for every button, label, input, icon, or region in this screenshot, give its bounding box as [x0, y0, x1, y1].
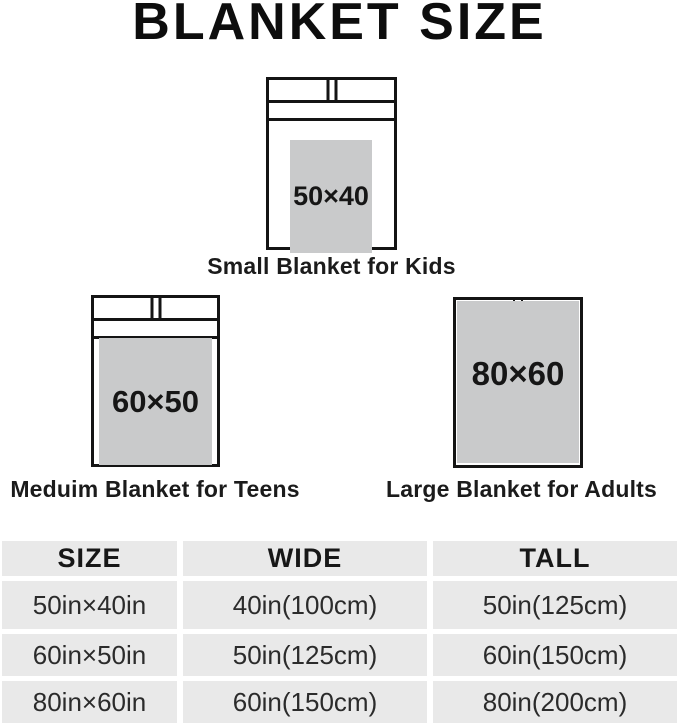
pillow-band: [269, 80, 394, 103]
table-header-size: SIZE: [2, 541, 177, 576]
pillow-divider: [150, 298, 161, 318]
table-cell-wide-small: 40in(100cm): [183, 581, 427, 629]
pillow-divider: [326, 80, 337, 100]
sheet-band: [94, 321, 217, 339]
size-table: SIZE WIDE TALL 50in×40in 40in(100cm) 50i…: [2, 541, 677, 723]
blanket-small: 50×40: [290, 140, 372, 253]
bed-diagram-medium: 60×50: [91, 295, 220, 467]
blanket-large: 80×60: [457, 301, 579, 463]
blanket-size-infographic: BLANKET SIZE 50×40 Small Blanket for Kid…: [0, 0, 679, 728]
sheet-band: [269, 103, 394, 121]
caption-medium: Meduim Blanket for Teens: [0, 476, 310, 503]
table-cell-wide-medium: 50in(125cm): [183, 634, 427, 676]
table-header-tall: TALL: [433, 541, 677, 576]
table-cell-size-large: 80in×60in: [2, 681, 177, 723]
table-cell-size-small: 50in×40in: [2, 581, 177, 629]
table-cell-size-medium: 60in×50in: [2, 634, 177, 676]
blanket-size-label-small: 50×40: [293, 181, 369, 212]
blanket-size-label-medium: 60×50: [112, 384, 199, 420]
caption-small: Small Blanket for Kids: [166, 253, 497, 280]
page-title: BLANKET SIZE: [0, 0, 679, 48]
blanket-medium: 60×50: [99, 338, 212, 465]
blanket-size-label-large: 80×60: [472, 355, 565, 393]
table-header-wide: WIDE: [183, 541, 427, 576]
table-cell-tall-large: 80in(200cm): [433, 681, 677, 723]
caption-large: Large Blanket for Adults: [366, 476, 677, 503]
table-cell-tall-small: 50in(125cm): [433, 581, 677, 629]
bed-diagram-large: 80×60: [453, 297, 583, 468]
pillow-band: [94, 298, 217, 321]
table-cell-tall-medium: 60in(150cm): [433, 634, 677, 676]
bed-diagram-small: 50×40: [266, 77, 397, 250]
table-cell-wide-large: 60in(150cm): [183, 681, 427, 723]
